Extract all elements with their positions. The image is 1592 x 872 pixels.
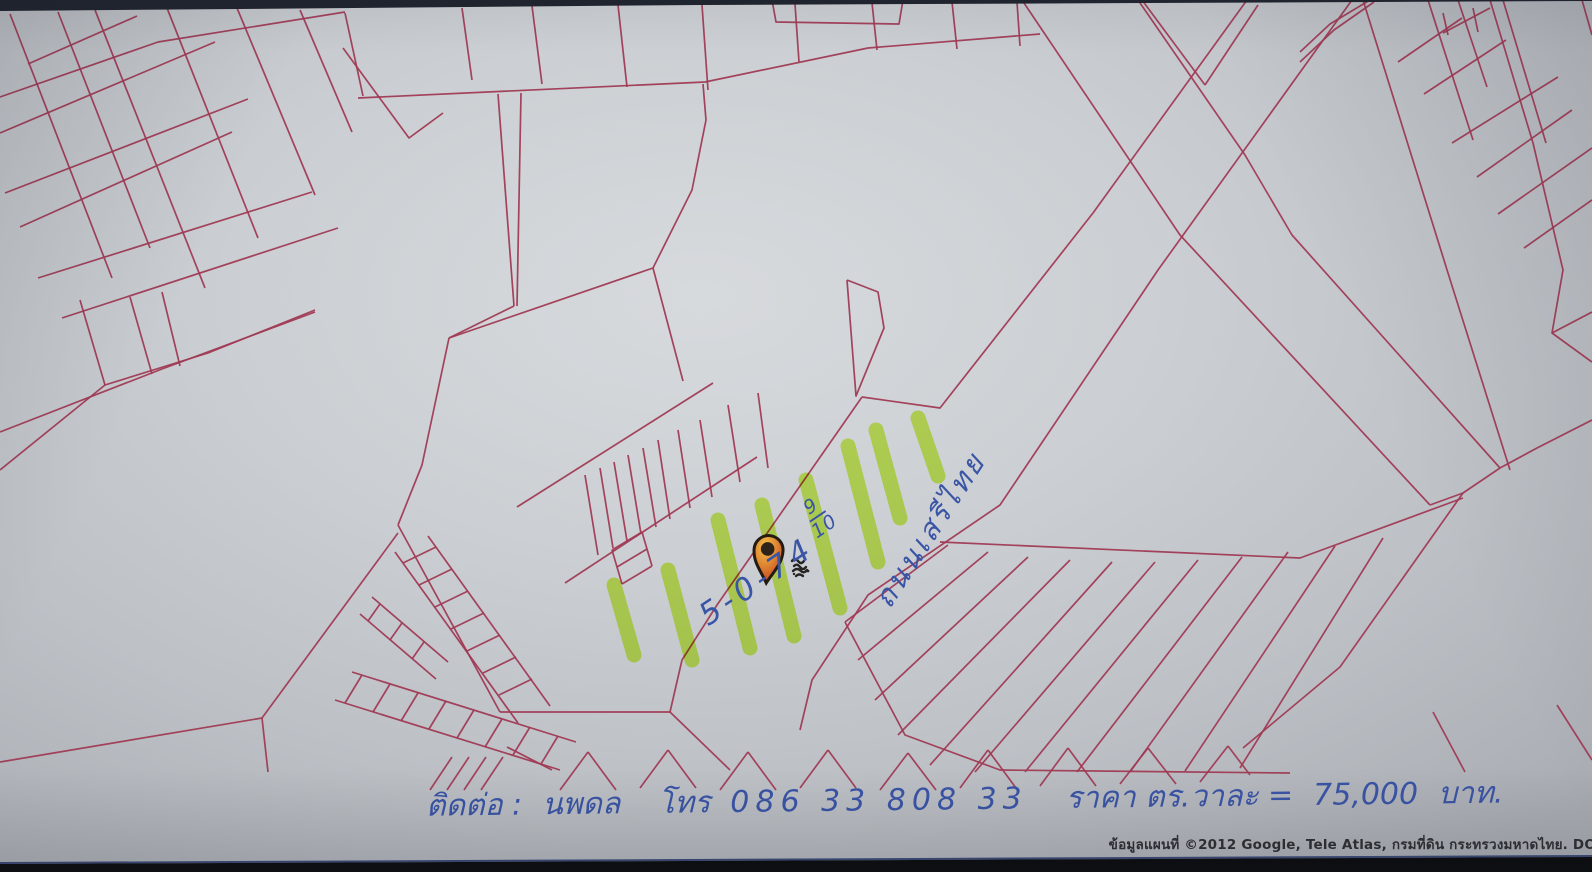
red-parcel-line	[795, 4, 799, 62]
phone-number: 086 33 808 33	[730, 781, 1028, 820]
red-parcel-line	[517, 93, 521, 306]
red-parcel-line	[1500, 420, 1592, 468]
red-parcel-line	[1240, 538, 1383, 768]
red-parcel-line	[449, 306, 514, 338]
red-parcel-lines-group	[0, 0, 1592, 790]
red-parcel-line	[700, 420, 712, 497]
red-parcel-line	[358, 34, 1040, 98]
red-parcel-line	[398, 338, 449, 525]
red-parcel-line	[845, 622, 1290, 773]
red-parcel-line	[467, 635, 500, 651]
red-parcel-line	[368, 604, 380, 621]
red-parcel-line	[130, 297, 152, 374]
map-copyright-text: ข้อมูลแผนที่ ©2012 Google, Tele Atlas, ก…	[1109, 833, 1592, 855]
red-parcel-line	[401, 693, 418, 721]
red-parcel-line	[1130, 552, 1288, 772]
red-parcel-line	[1430, 468, 1500, 505]
red-parcel-line	[1228, 746, 1250, 775]
red-parcel-line	[360, 614, 436, 679]
red-parcel-line	[462, 8, 472, 80]
price-label: ราคา ตร.วาละ =	[1065, 772, 1293, 822]
red-parcel-line	[1443, 8, 1490, 33]
red-parcel-line	[653, 268, 683, 381]
red-parcel-line	[343, 48, 443, 138]
red-parcel-line	[517, 383, 713, 507]
red-parcel-line	[1458, 0, 1487, 87]
contact-name: นพดล	[542, 780, 621, 828]
red-parcel-line	[653, 84, 706, 268]
red-parcel-line	[499, 679, 532, 695]
red-parcel-line	[428, 536, 550, 706]
red-parcel-line	[930, 562, 1112, 765]
red-parcel-line	[0, 312, 315, 432]
red-parcel-line	[847, 280, 884, 396]
red-parcel-line	[1025, 560, 1198, 772]
red-parcel-line	[429, 701, 446, 729]
red-parcel-line	[585, 475, 598, 555]
red-parcel-line	[670, 712, 730, 770]
red-parcel-line	[1433, 712, 1465, 772]
red-parcel-line	[622, 566, 652, 584]
red-parcel-line	[1503, 0, 1546, 143]
red-parcel-line	[237, 8, 315, 195]
red-parcel-line	[1300, 2, 1374, 62]
red-parcel-line	[1205, 5, 1258, 85]
red-parcel-line	[352, 672, 576, 742]
red-parcel-line	[485, 719, 502, 747]
parcel-map-svg	[0, 0, 1592, 872]
red-parcel-line	[58, 12, 150, 248]
red-parcel-line	[0, 12, 345, 97]
red-parcel-line	[541, 736, 558, 764]
red-parcel-line	[498, 94, 514, 306]
highlight-stroke	[668, 570, 692, 660]
red-parcel-line	[0, 310, 315, 470]
red-parcel-line	[262, 718, 268, 772]
red-parcel-line	[335, 700, 560, 770]
red-parcel-line	[532, 6, 542, 84]
contact-label: ติดต่อ :	[426, 782, 523, 830]
red-parcel-line	[373, 684, 390, 712]
red-parcel-line	[618, 5, 627, 87]
red-parcel-line	[800, 0, 1352, 730]
red-parcel-line	[728, 405, 740, 482]
red-parcel-line	[10, 14, 112, 278]
red-parcel-line	[403, 547, 436, 563]
red-parcel-line	[600, 468, 613, 548]
red-parcel-line	[643, 448, 656, 527]
red-parcel-line	[38, 192, 312, 278]
red-parcel-line	[940, 498, 1463, 558]
red-parcel-line	[1300, 0, 1370, 52]
highlight-stroke	[614, 585, 634, 655]
red-parcel-line	[975, 562, 1155, 772]
red-parcel-line	[390, 623, 402, 640]
red-parcel-line	[670, 660, 682, 712]
red-parcel-line	[398, 525, 500, 712]
red-parcel-line	[628, 455, 641, 534]
map-photo: 5-0-74 9 10 ถนนเสรีไทย ติดต่อ : นพดล โทร…	[0, 0, 1592, 872]
red-parcel-line	[614, 462, 627, 541]
tel-label: โทร	[658, 779, 711, 827]
red-parcel-line	[80, 300, 105, 385]
red-parcel-line	[412, 642, 424, 659]
red-parcel-line	[1552, 312, 1592, 333]
red-parcel-line	[1473, 8, 1478, 32]
red-parcel-line	[62, 228, 338, 318]
red-parcel-line	[162, 292, 180, 366]
red-parcel-line	[872, 3, 877, 50]
red-parcel-line	[1077, 557, 1242, 772]
red-parcel-line	[0, 42, 215, 133]
red-parcel-line	[1017, 2, 1020, 46]
highlight-stroke	[848, 446, 878, 562]
red-parcel-line	[678, 430, 690, 508]
red-parcel-line	[395, 552, 518, 723]
red-parcel-line	[451, 613, 484, 629]
red-parcel-line	[1498, 148, 1592, 214]
red-parcel-line	[1142, 0, 1205, 85]
red-parcel-line	[1398, 18, 1462, 62]
red-parcel-line	[1022, 0, 1430, 505]
red-parcel-line	[1424, 40, 1506, 94]
red-parcel-line	[702, 5, 708, 90]
price-value: 75,000	[1313, 777, 1418, 813]
red-parcel-line	[483, 657, 516, 673]
red-parcel-line	[300, 10, 352, 132]
red-parcel-line	[1490, 0, 1592, 362]
red-parcel-line	[1138, 0, 1500, 468]
red-parcel-line	[345, 675, 362, 703]
red-parcel-line	[617, 549, 647, 567]
red-parcel-line	[658, 440, 670, 519]
red-parcel-line	[435, 591, 468, 607]
red-parcel-line	[642, 532, 652, 566]
red-parcel-line	[28, 16, 137, 64]
red-parcel-line	[1582, 0, 1592, 35]
highlight-stroke	[918, 418, 938, 476]
red-parcel-line	[758, 393, 768, 468]
red-parcel-line	[1452, 77, 1558, 143]
red-parcel-line	[0, 533, 398, 762]
red-parcel-line	[1363, 0, 1510, 470]
highlight-stroke	[876, 430, 900, 518]
red-parcel-line	[1477, 110, 1572, 177]
red-parcel-line	[457, 710, 474, 738]
red-parcel-line	[862, 0, 1247, 408]
red-parcel-line	[612, 532, 642, 550]
price-unit: บาท.	[1438, 770, 1504, 818]
red-parcel-line	[1524, 200, 1592, 248]
red-parcel-line	[449, 268, 653, 338]
red-parcel-line	[1557, 705, 1592, 760]
red-parcel-line	[898, 560, 1070, 735]
